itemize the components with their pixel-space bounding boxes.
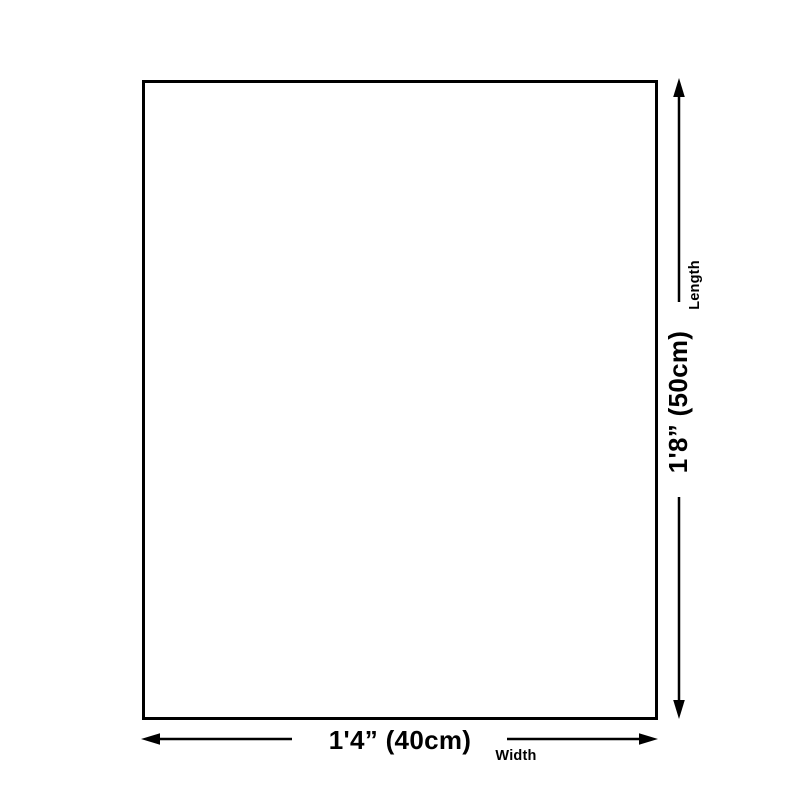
arrow-down-icon — [673, 700, 685, 719]
arrow-right-icon — [639, 733, 658, 745]
width-axis-label: Width — [495, 749, 536, 764]
width-value-label: 1'4” (40cm) — [329, 727, 471, 753]
length-axis-label: Length — [688, 260, 703, 310]
product-outline — [144, 82, 657, 719]
dimension-diagram: 1'4” (40cm) Width 1'8” (50cm) Length — [0, 0, 800, 800]
length-value-label: 1'8” (50cm) — [665, 331, 691, 473]
